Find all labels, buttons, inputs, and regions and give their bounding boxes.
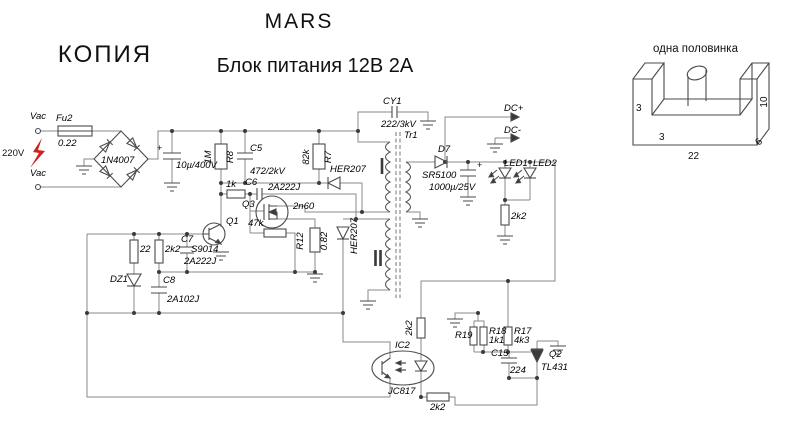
center-leg-sides (688, 70, 706, 106)
label-47k: 47k (248, 218, 265, 229)
label-fu2: Fu2 (56, 113, 73, 124)
dim-leg: 3 (636, 103, 642, 114)
label-dc-minus: DC- (504, 125, 521, 136)
label-cy1: CY1 (383, 96, 401, 107)
label-r7: R7 (323, 150, 334, 163)
value-cy1: 222/3kV (380, 119, 418, 130)
core-lines (396, 132, 400, 298)
label-r19: R19 (455, 330, 473, 341)
optocoupler-ic2 (372, 351, 434, 385)
core-caption: одна половинка (653, 43, 739, 55)
label-2k2-opto: 2k2 (429, 402, 446, 413)
opto-led (415, 361, 427, 371)
label-led2: LED2 (533, 158, 557, 169)
label-d7: D7 (438, 144, 451, 155)
vac-terminal-bottom (36, 185, 41, 190)
label-bridge: 1N4007 (101, 155, 135, 166)
label-c6: C6 (245, 177, 258, 188)
diode-dz1 (127, 274, 141, 286)
primary-winding (386, 142, 391, 212)
center-leg-top (685, 64, 708, 83)
value-q2: TL431 (541, 362, 568, 373)
opto-transistor (382, 358, 390, 378)
led1-symbol (499, 168, 511, 178)
value-r7: 82k (301, 148, 312, 165)
resistor-2k2-opto (427, 393, 449, 401)
value-r18: 1k1 (489, 335, 504, 346)
label-tr1: Tr1 (404, 130, 418, 141)
resistor-2k2-led (501, 205, 509, 225)
cap-cy1 (392, 106, 397, 118)
value-ic2: JC817 (387, 386, 416, 397)
diode-her207-aux (337, 227, 349, 239)
label-c7: C7 (181, 234, 194, 245)
label-her207-snubber: HER207 (330, 164, 367, 175)
value-c5: 472/2kV (250, 166, 287, 177)
dim-inner: 3 (659, 132, 665, 143)
label-2k2-base: 2k2 (164, 244, 181, 255)
label-r8: R8 (225, 150, 236, 163)
page-title: MARS (265, 10, 334, 33)
value-r17: 4k3 (514, 335, 530, 346)
fuse-fu2 (58, 126, 92, 136)
value-q1: S9014 (191, 244, 218, 255)
led2-symbol (524, 168, 536, 178)
label-mains: 220V (2, 148, 25, 159)
label-c8: C8 (163, 275, 176, 286)
resistor-2k2-base (155, 240, 163, 263)
plus-cout: + (477, 160, 482, 170)
value-c15: 224 (509, 365, 526, 376)
label-22: 22 (139, 244, 151, 255)
resistor-47k (264, 229, 286, 237)
label-her207-aux: HER207 (349, 217, 360, 254)
cap-c8 (151, 287, 167, 293)
opto-light-arrows (396, 361, 406, 372)
value-d7: SR5100 (422, 170, 457, 181)
resistor-r18 (480, 327, 487, 345)
vac-terminal-top (36, 129, 41, 134)
label-ic2: IC2 (395, 340, 411, 351)
label-vac-top: Vac (30, 111, 46, 122)
value-c6: 2A222J (267, 182, 300, 193)
diode-her207-snubber (328, 177, 340, 189)
dim-depth: 6 (753, 136, 765, 148)
dim-width: 22 (688, 151, 700, 162)
lightning-bolt-icon (30, 138, 45, 168)
transistor-q1 (203, 223, 225, 245)
label-dz1: DZ1 (110, 274, 128, 285)
resistor-2k2-feedback (417, 318, 425, 338)
circuit-canvas: MARS КОПИЯ Блок питания 12В 2А (0, 0, 800, 426)
copy-stamp: КОПИЯ (58, 41, 152, 68)
value-r12: 0.82 (319, 231, 330, 250)
label-r12: R12 (295, 232, 306, 250)
shunt-regulator-q2-tl431 (531, 349, 543, 362)
plus-cin: + (157, 143, 162, 153)
resistor-1k (227, 190, 245, 198)
value-q3: 2n60 (292, 201, 315, 212)
transformer-tr1 (376, 132, 411, 298)
label-vac-bottom: Vac (30, 168, 46, 179)
core-half-drawing: одна половинка 3 3 22 10 6 (633, 43, 770, 162)
cap-c6 (257, 188, 262, 200)
label-c5: C5 (250, 143, 263, 154)
label-q3: Q3 (242, 199, 255, 210)
label-led1: LED1 (504, 158, 528, 169)
secondary-winding (406, 162, 411, 212)
cap-output (460, 170, 476, 176)
label-q2: Q2 (549, 349, 562, 360)
value-c8: 2A102J (166, 294, 199, 305)
ac-input (30, 126, 92, 190)
dc-plus-arrow (511, 113, 519, 121)
value-fu2: 0.22 (58, 138, 77, 149)
label-2k2-led: 2k2 (510, 211, 527, 222)
auxiliary-winding (386, 219, 391, 290)
page-subtitle: Блок питания 12В 2А (217, 55, 414, 77)
resistor-22 (130, 240, 138, 263)
label-q1: Q1 (226, 216, 239, 227)
value-cout: 1000µ/25V (429, 182, 477, 193)
label-2k2-feedback: 2k2 (404, 320, 415, 337)
schematic-page: MARS КОПИЯ Блок питания 12В 2А (0, 0, 800, 426)
cap-bulk-input (163, 153, 181, 159)
label-1k: 1k (226, 179, 237, 190)
label-dc-plus: DC+ (504, 103, 524, 114)
dim-height: 10 (759, 96, 770, 108)
value-r8: 1M (203, 150, 214, 163)
value-c7: 2A222J (183, 256, 216, 267)
label-c15: C15 (491, 348, 509, 359)
